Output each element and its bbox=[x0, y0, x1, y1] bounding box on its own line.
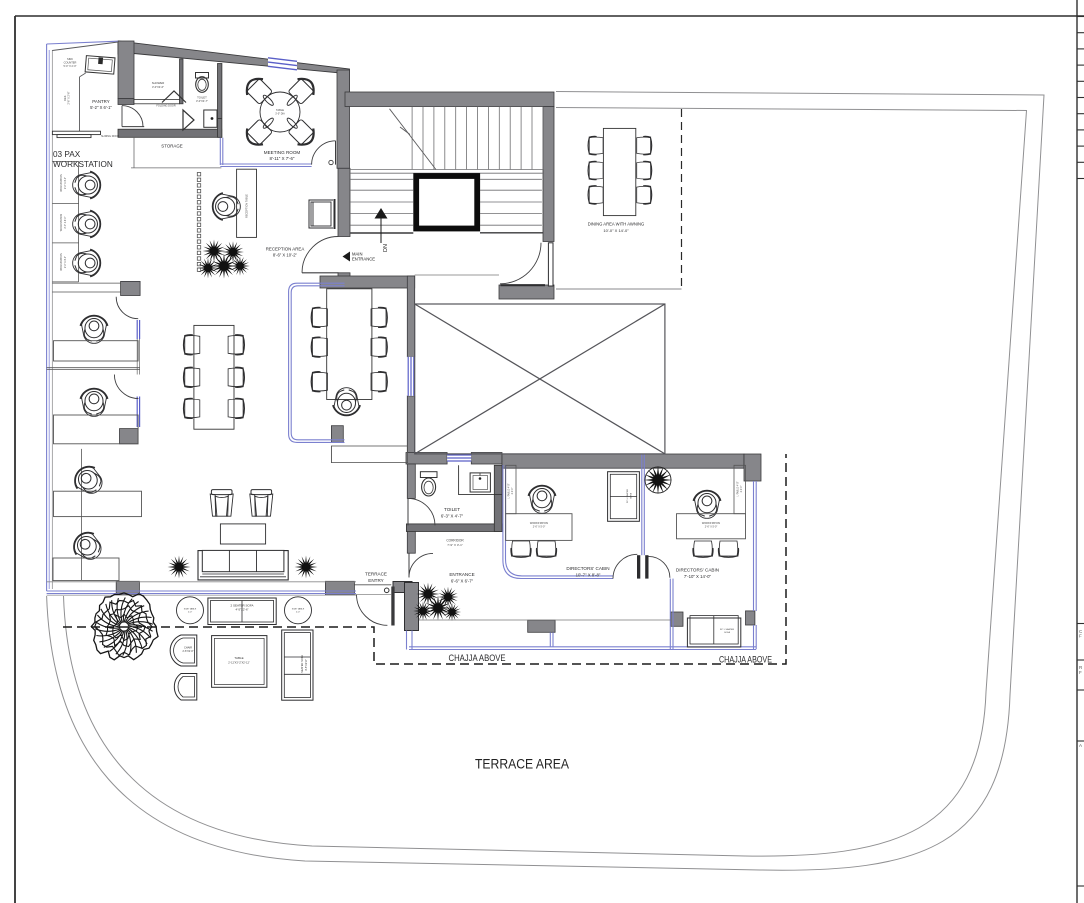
svg-text:8'-6" X 10'-2": 8'-6" X 10'-2" bbox=[273, 253, 298, 258]
svg-text:1 SEATER SOFA: 1 SEATER SOFA bbox=[300, 655, 304, 675]
svg-text:TOILET: TOILET bbox=[197, 96, 207, 100]
svg-text:36" L SEATER: 36" L SEATER bbox=[720, 628, 735, 631]
svg-text:2'-11"X3'-2"X2'-11": 2'-11"X3'-2"X2'-11" bbox=[228, 661, 250, 665]
svg-text:2'-0": 2'-0" bbox=[188, 612, 193, 614]
svg-text:7'-10" X 14'-0": 7'-10" X 14'-0" bbox=[684, 574, 712, 579]
svg-text:2'-6" X 5'-0": 2'-6" X 5'-0" bbox=[533, 526, 546, 529]
svg-text:8'-11" X 7'-6": 8'-11" X 7'-6" bbox=[270, 156, 295, 161]
svg-text:2'-6"X2'-6": 2'-6"X2'-6" bbox=[182, 650, 193, 653]
svg-text:6'-3" X 4'-7": 6'-3" X 4'-7" bbox=[441, 514, 464, 519]
svg-text:2'-6" X 5'-0": 2'-6" X 5'-0" bbox=[705, 526, 718, 529]
svg-text:SIDE TABLE: SIDE TABLE bbox=[184, 608, 197, 611]
svg-text:3'-0" DIA: 3'-0" DIA bbox=[275, 113, 285, 116]
svg-text:5'-2" X 6'-1": 5'-2" X 6'-1" bbox=[90, 105, 112, 110]
svg-text:TABLE: TABLE bbox=[276, 108, 284, 112]
svg-text:RECEPTION AREA: RECEPTION AREA bbox=[266, 247, 305, 252]
svg-text:2'-0" X 4'-0": 2'-0" X 4'-0" bbox=[65, 177, 67, 189]
svg-text:10'-7" X 8'-8": 10'-7" X 8'-8" bbox=[576, 573, 601, 578]
svg-text:TOILET: TOILET bbox=[444, 507, 460, 512]
svg-text:L-TABLE 4'-0": L-TABLE 4'-0" bbox=[508, 483, 511, 498]
svg-text:SINK: SINK bbox=[67, 57, 73, 61]
svg-text:X 2'-0": X 2'-0" bbox=[512, 487, 514, 494]
svg-text:PANTRY: PANTRY bbox=[92, 99, 109, 104]
svg-text:SLIDING DOOR: SLIDING DOOR bbox=[101, 135, 119, 138]
svg-text:DIRECTORS' CABIN: DIRECTORS' CABIN bbox=[676, 568, 719, 573]
svg-text:L-TABLE 4'-0": L-TABLE 4'-0" bbox=[737, 481, 740, 496]
svg-text:10'-0" X 14'-0": 10'-0" X 14'-0" bbox=[603, 228, 629, 233]
svg-text:2'-0" X 4'-0": 2'-0" X 4'-0" bbox=[65, 256, 67, 268]
svg-text:DINING AREA WITH AWNING: DINING AREA WITH AWNING bbox=[588, 222, 645, 227]
svg-text:MEETING ROOM: MEETING ROOM bbox=[264, 150, 301, 155]
svg-text:SOFA: SOFA bbox=[629, 493, 632, 499]
svg-text:CHAIR: CHAIR bbox=[184, 646, 192, 650]
svg-text:WORKSTATION: WORKSTATION bbox=[60, 214, 63, 232]
svg-text:6'-6" X 6'-7": 6'-6" X 6'-7" bbox=[451, 579, 474, 584]
svg-text:STORAGE: STORAGE bbox=[161, 144, 182, 149]
svg-text:F: F bbox=[1079, 670, 1082, 675]
svg-text:SIDE TABLE: SIDE TABLE bbox=[292, 608, 305, 611]
svg-text:ENTRY: ENTRY bbox=[368, 578, 384, 583]
svg-text:7'-9" X 3'-1": 7'-9" X 3'-1" bbox=[447, 543, 463, 547]
svg-text:4'-5"X2'-6": 4'-5"X2'-6" bbox=[305, 659, 308, 671]
svg-text:RECEPTION TABLE: RECEPTION TABLE bbox=[245, 194, 249, 218]
svg-text:F: F bbox=[1079, 634, 1082, 639]
svg-text:2'-6" X 2'-6": 2'-6" X 2'-6" bbox=[68, 91, 71, 104]
svg-text:3'-0"X4'-6": 3'-0"X4'-6" bbox=[152, 85, 164, 89]
svg-text:2'-0": 2'-0" bbox=[296, 612, 301, 614]
svg-text:WORKSTATION: WORKSTATION bbox=[60, 174, 63, 192]
svg-text:DIRECTORS' CABIN: DIRECTORS' CABIN bbox=[566, 566, 609, 571]
svg-text:03 PAX: 03 PAX bbox=[53, 150, 81, 159]
svg-text:TERRACE AREA: TERRACE AREA bbox=[475, 757, 569, 773]
svg-text:REF.: REF. bbox=[63, 95, 67, 101]
svg-text:4'-5"X2'-6": 4'-5"X2'-6" bbox=[235, 608, 248, 612]
svg-text:TABLE: TABLE bbox=[234, 656, 243, 660]
svg-text:TERRACE: TERRACE bbox=[365, 572, 387, 577]
svg-text:SHOWER: SHOWER bbox=[152, 81, 165, 85]
svg-text:COUNTER: COUNTER bbox=[64, 60, 77, 64]
svg-text:X 2'-0": X 2'-0" bbox=[741, 485, 743, 492]
svg-text:CHAJJA ABOVE: CHAJJA ABOVE bbox=[719, 655, 772, 665]
svg-text:SOFA: SOFA bbox=[724, 631, 730, 634]
svg-text:WORKSTATION: WORKSTATION bbox=[60, 253, 63, 271]
svg-text:3'-0"X4'-7": 3'-0"X4'-7" bbox=[196, 99, 208, 103]
svg-text:DN: DN bbox=[383, 244, 389, 252]
svg-text:2'-0" X 4'-0": 2'-0" X 4'-0" bbox=[65, 216, 67, 228]
svg-text:ENTRANCE: ENTRANCE bbox=[449, 572, 474, 577]
svg-text:CHAJJA ABOVE: CHAJJA ABOVE bbox=[449, 653, 506, 663]
svg-text:36" L SEATER: 36" L SEATER bbox=[626, 489, 629, 504]
svg-text:5'-0" X 2'-0": 5'-0" X 2'-0" bbox=[63, 65, 76, 68]
svg-text:ENTRANCE: ENTRANCE bbox=[352, 257, 375, 262]
svg-text:A: A bbox=[1079, 743, 1082, 748]
svg-text:FOLDING DOOR: FOLDING DOOR bbox=[156, 105, 176, 108]
